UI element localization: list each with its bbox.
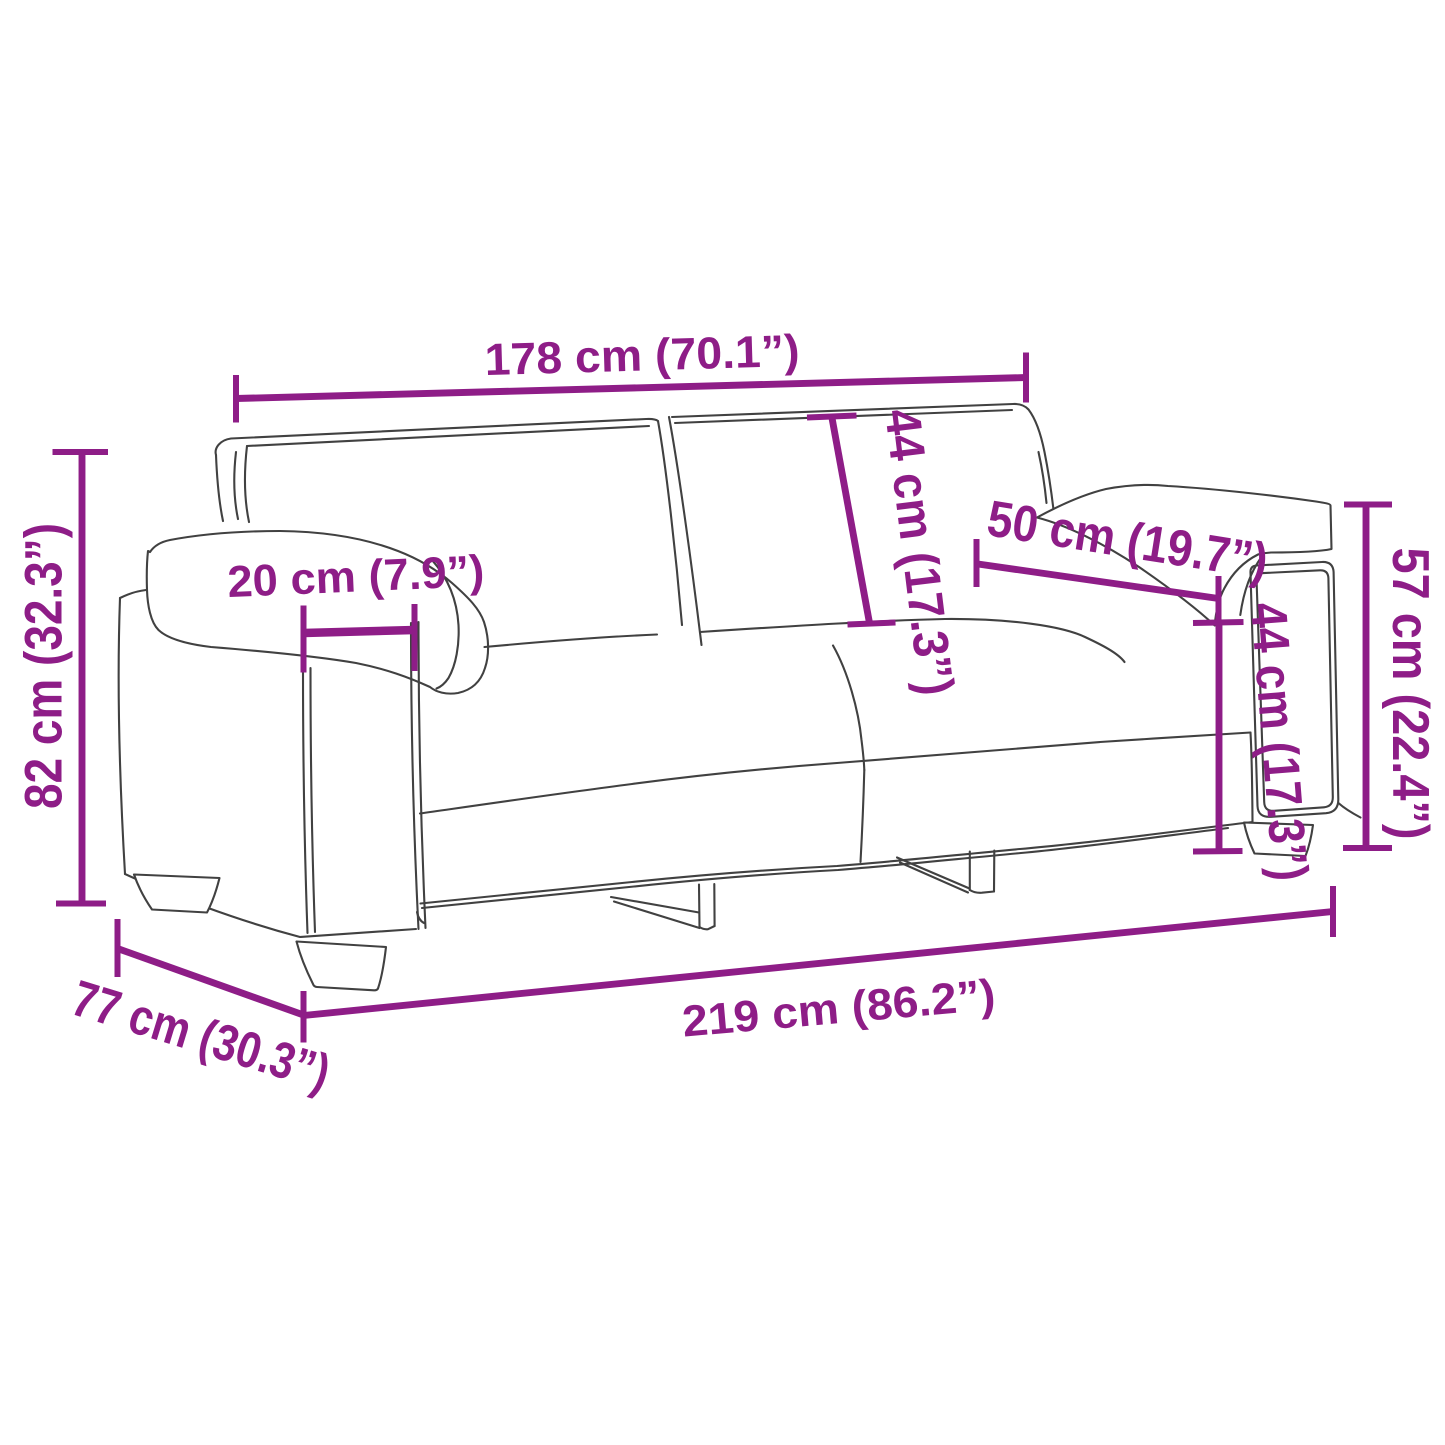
svg-text:178 cm (70.1”): 178 cm (70.1”)	[484, 325, 800, 385]
svg-text:57 cm (22.4”): 57 cm (22.4”)	[1381, 548, 1439, 840]
svg-text:82 cm (32.3”): 82 cm (32.3”)	[15, 523, 74, 809]
